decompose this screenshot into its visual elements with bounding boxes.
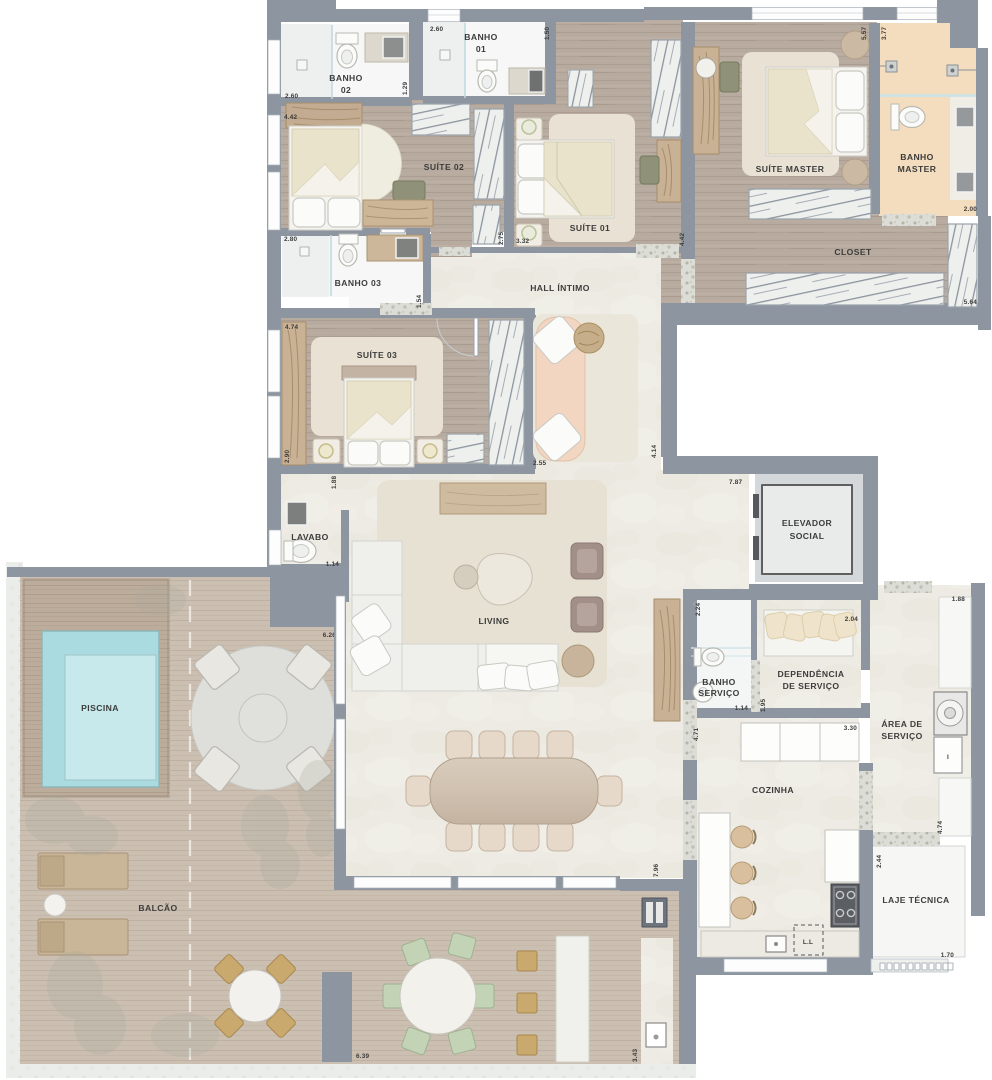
svg-text:2.75: 2.75 — [498, 232, 505, 245]
svg-text:BANHO: BANHO — [900, 152, 934, 162]
svg-text:1.14: 1.14 — [735, 705, 748, 712]
svg-text:1.88: 1.88 — [952, 596, 965, 603]
svg-text:SUÍTE MASTER: SUÍTE MASTER — [756, 164, 825, 174]
svg-text:2.90: 2.90 — [284, 450, 291, 463]
svg-text:DE SERVIÇO: DE SERVIÇO — [783, 681, 840, 691]
svg-text:4.42: 4.42 — [679, 233, 686, 246]
svg-text:3.30: 3.30 — [844, 725, 857, 732]
svg-text:BALCÃO: BALCÃO — [138, 903, 177, 913]
svg-text:2.24: 2.24 — [695, 603, 702, 616]
svg-text:02: 02 — [341, 85, 351, 95]
svg-text:1.54: 1.54 — [416, 295, 423, 308]
svg-text:1.70: 1.70 — [941, 952, 954, 959]
svg-text:PISCINA: PISCINA — [81, 703, 119, 713]
svg-text:4.42: 4.42 — [284, 114, 297, 121]
svg-text:4.71: 4.71 — [693, 728, 700, 741]
svg-text:LAVABO: LAVABO — [291, 532, 328, 542]
svg-text:4.74: 4.74 — [937, 821, 944, 834]
svg-text:2.80: 2.80 — [284, 236, 297, 243]
svg-text:2.04: 2.04 — [845, 616, 858, 623]
svg-text:CLOSET: CLOSET — [834, 247, 872, 257]
svg-text:BANHO: BANHO — [702, 677, 736, 687]
svg-text:1.88: 1.88 — [331, 476, 338, 489]
svg-text:SUÍTE 01: SUÍTE 01 — [570, 223, 610, 233]
svg-text:2.55: 2.55 — [533, 460, 546, 467]
svg-text:BANHO: BANHO — [329, 73, 363, 83]
svg-text:ELEVADOR: ELEVADOR — [782, 518, 833, 528]
svg-text:2.60: 2.60 — [285, 93, 298, 100]
svg-text:SUÍTE 03: SUÍTE 03 — [357, 350, 397, 360]
svg-text:6.39: 6.39 — [356, 1053, 369, 1060]
svg-text:2.60: 2.60 — [430, 26, 443, 33]
svg-text:DEPENDÊNCIA: DEPENDÊNCIA — [778, 668, 845, 679]
svg-text:01: 01 — [476, 44, 486, 54]
svg-text:L.L: L.L — [803, 939, 813, 946]
svg-text:1.29: 1.29 — [402, 82, 409, 95]
svg-text:5.64: 5.64 — [964, 299, 977, 306]
svg-text:2.44: 2.44 — [876, 855, 883, 868]
svg-text:3.43: 3.43 — [632, 1049, 639, 1062]
svg-text:BANHO 03: BANHO 03 — [335, 278, 382, 288]
svg-text:1.14: 1.14 — [326, 561, 339, 568]
svg-text:HALL ÍNTIMO: HALL ÍNTIMO — [530, 283, 590, 293]
svg-text:SUÍTE 02: SUÍTE 02 — [424, 162, 464, 172]
svg-text:7.96: 7.96 — [653, 864, 660, 877]
svg-text:7.87: 7.87 — [729, 479, 742, 486]
svg-text:3.32: 3.32 — [516, 238, 529, 245]
svg-text:LIVING: LIVING — [478, 616, 509, 626]
svg-text:COZINHA: COZINHA — [752, 785, 794, 795]
svg-text:ÁREA DE: ÁREA DE — [881, 719, 922, 729]
svg-text:3.77: 3.77 — [881, 27, 888, 40]
svg-text:SERVIÇO: SERVIÇO — [881, 731, 922, 741]
svg-text:2.00: 2.00 — [964, 206, 977, 213]
svg-text:4.14: 4.14 — [651, 445, 658, 458]
svg-text:SOCIAL: SOCIAL — [790, 531, 825, 541]
svg-text:LAJE TÉCNICA: LAJE TÉCNICA — [882, 895, 949, 905]
svg-text:BANHO: BANHO — [464, 32, 498, 42]
svg-text:I: I — [947, 754, 949, 761]
svg-text:SERVIÇO: SERVIÇO — [698, 688, 739, 698]
svg-text:4.74: 4.74 — [285, 324, 298, 331]
svg-text:1.95: 1.95 — [760, 699, 767, 712]
svg-text:5.57: 5.57 — [861, 27, 868, 40]
svg-text:1.50: 1.50 — [544, 27, 551, 40]
svg-text:MASTER: MASTER — [898, 164, 937, 174]
